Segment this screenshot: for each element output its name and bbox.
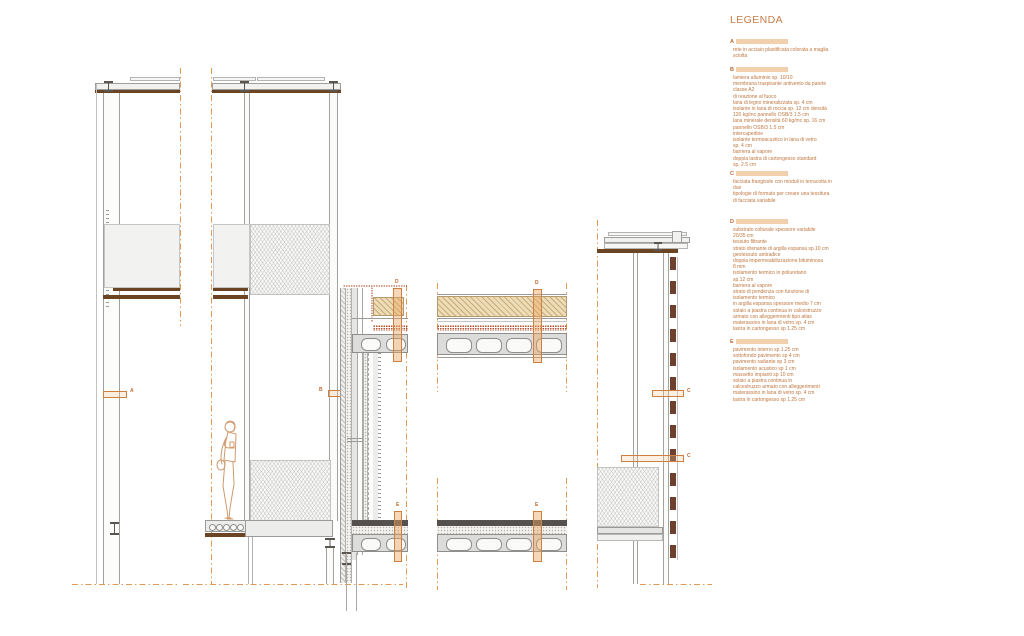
waterproofing-line xyxy=(343,285,407,287)
legend-highlight-box xyxy=(736,339,788,344)
layer-line xyxy=(437,318,567,319)
legend-section-d: D substrato colturale spessore variabile… xyxy=(730,218,900,332)
terracotta-louvers xyxy=(670,257,676,560)
column-line xyxy=(346,553,347,611)
legend-text-e: pavimento interno sp 1.25 cm sottofondo … xyxy=(733,347,900,403)
waterproofing-band xyxy=(437,325,567,331)
marker-c-box xyxy=(652,390,684,397)
steel-beam-icon xyxy=(110,522,119,535)
marker-b-label: B xyxy=(319,388,323,393)
hatch-strip xyxy=(378,353,381,520)
legend-highlight-box xyxy=(736,67,788,72)
legend-letter-b: B xyxy=(730,67,734,73)
ground-line xyxy=(183,584,403,585)
layer-line xyxy=(437,294,567,295)
legend-text-b: lamiera alluminio sp. 10/10 membrana tra… xyxy=(733,75,900,168)
waterproofing-band xyxy=(373,325,408,331)
marker-c-label: C xyxy=(687,389,691,394)
facade-line xyxy=(96,84,97,584)
floor-slab xyxy=(245,520,333,537)
legend-letter-a: A xyxy=(730,39,734,45)
legend-section-c: C facciata frangisole con moduli in terr… xyxy=(730,170,900,204)
ground-line xyxy=(640,584,712,585)
marker-e-label: E xyxy=(535,503,538,508)
marker-e-bar xyxy=(533,511,542,562)
slab-edge xyxy=(103,295,180,299)
steel-beam-icon xyxy=(240,81,249,92)
slab-edge xyxy=(113,288,180,291)
steel-beam-icon xyxy=(104,81,113,92)
floor-slab xyxy=(597,527,663,534)
legend-text-c: facciata frangisole con moduli in terrac… xyxy=(733,179,900,204)
column xyxy=(326,548,334,584)
legend-section-a: A rete in acciaio plastificata colorata … xyxy=(730,38,900,59)
legend-letter-e: E xyxy=(730,339,734,345)
marker-d-bar xyxy=(393,288,402,362)
section-cut-line xyxy=(180,68,181,326)
steel-beam-icon xyxy=(329,81,338,92)
legend-title: LEGENDA xyxy=(730,14,783,26)
column xyxy=(248,537,253,584)
hollow-core-slab xyxy=(437,333,567,355)
legend-highlight-box xyxy=(736,171,788,176)
marker-a-label: A xyxy=(130,389,134,394)
legend-text-a: rete in acciaio plastificata colorata a … xyxy=(733,47,900,59)
layer-line xyxy=(437,357,567,358)
marker-d-bar xyxy=(533,289,542,363)
roof-plank xyxy=(130,77,180,81)
roof-deck xyxy=(212,83,341,90)
marker-a-box xyxy=(103,391,127,398)
architectural-drawing-page: A B xyxy=(0,0,1024,636)
column-line xyxy=(356,553,357,611)
legend-section-b: B lamiera alluminio sp. 10/10 membrana t… xyxy=(730,66,900,168)
column xyxy=(244,93,250,521)
roof-edge-beam xyxy=(212,90,341,93)
slab-edge xyxy=(213,288,248,291)
wall-column xyxy=(103,93,120,584)
hollow-core-slab xyxy=(437,534,567,552)
steel-beam-icon xyxy=(654,242,662,251)
balcony-slab xyxy=(205,520,247,532)
screed-layer xyxy=(437,526,567,534)
marker-c-label: C xyxy=(687,454,691,459)
marker-c-box xyxy=(621,455,684,462)
louver-support-line xyxy=(677,257,678,560)
column xyxy=(329,93,338,521)
marker-e-bar xyxy=(394,511,402,562)
legend-highlight-box xyxy=(736,39,788,44)
legend-letter-c: C xyxy=(730,171,734,177)
roof-plank xyxy=(257,77,325,81)
steel-mesh-panel xyxy=(597,467,659,527)
layer-line xyxy=(437,321,567,322)
glass-panel xyxy=(213,224,250,288)
marker-d-label: D xyxy=(535,281,539,286)
section-cut-line xyxy=(211,68,212,584)
person-figure xyxy=(214,418,242,522)
steel-mesh-panel xyxy=(250,224,330,295)
slab-edge xyxy=(213,295,248,299)
substrate-layer xyxy=(437,296,567,317)
marker-d-label: D xyxy=(395,280,399,285)
transom xyxy=(347,438,363,442)
glass-panel xyxy=(104,224,180,288)
floor-slab xyxy=(597,534,663,541)
marker-e-label: E xyxy=(396,503,399,508)
legend-letter-d: D xyxy=(730,219,734,225)
steel-beam-icon xyxy=(325,538,335,548)
parapet-block xyxy=(672,231,682,243)
legend-section-e: E pavimento interno sp 1.25 cm sottofond… xyxy=(730,338,900,403)
ground-line xyxy=(72,584,178,585)
legend-text-d: substrato colturale spessore variabile 2… xyxy=(733,227,900,332)
legend-highlight-box xyxy=(736,219,788,224)
slab-edge xyxy=(205,533,249,537)
roof-plank xyxy=(213,77,256,81)
column xyxy=(663,253,669,584)
insulation-layer xyxy=(345,288,352,583)
